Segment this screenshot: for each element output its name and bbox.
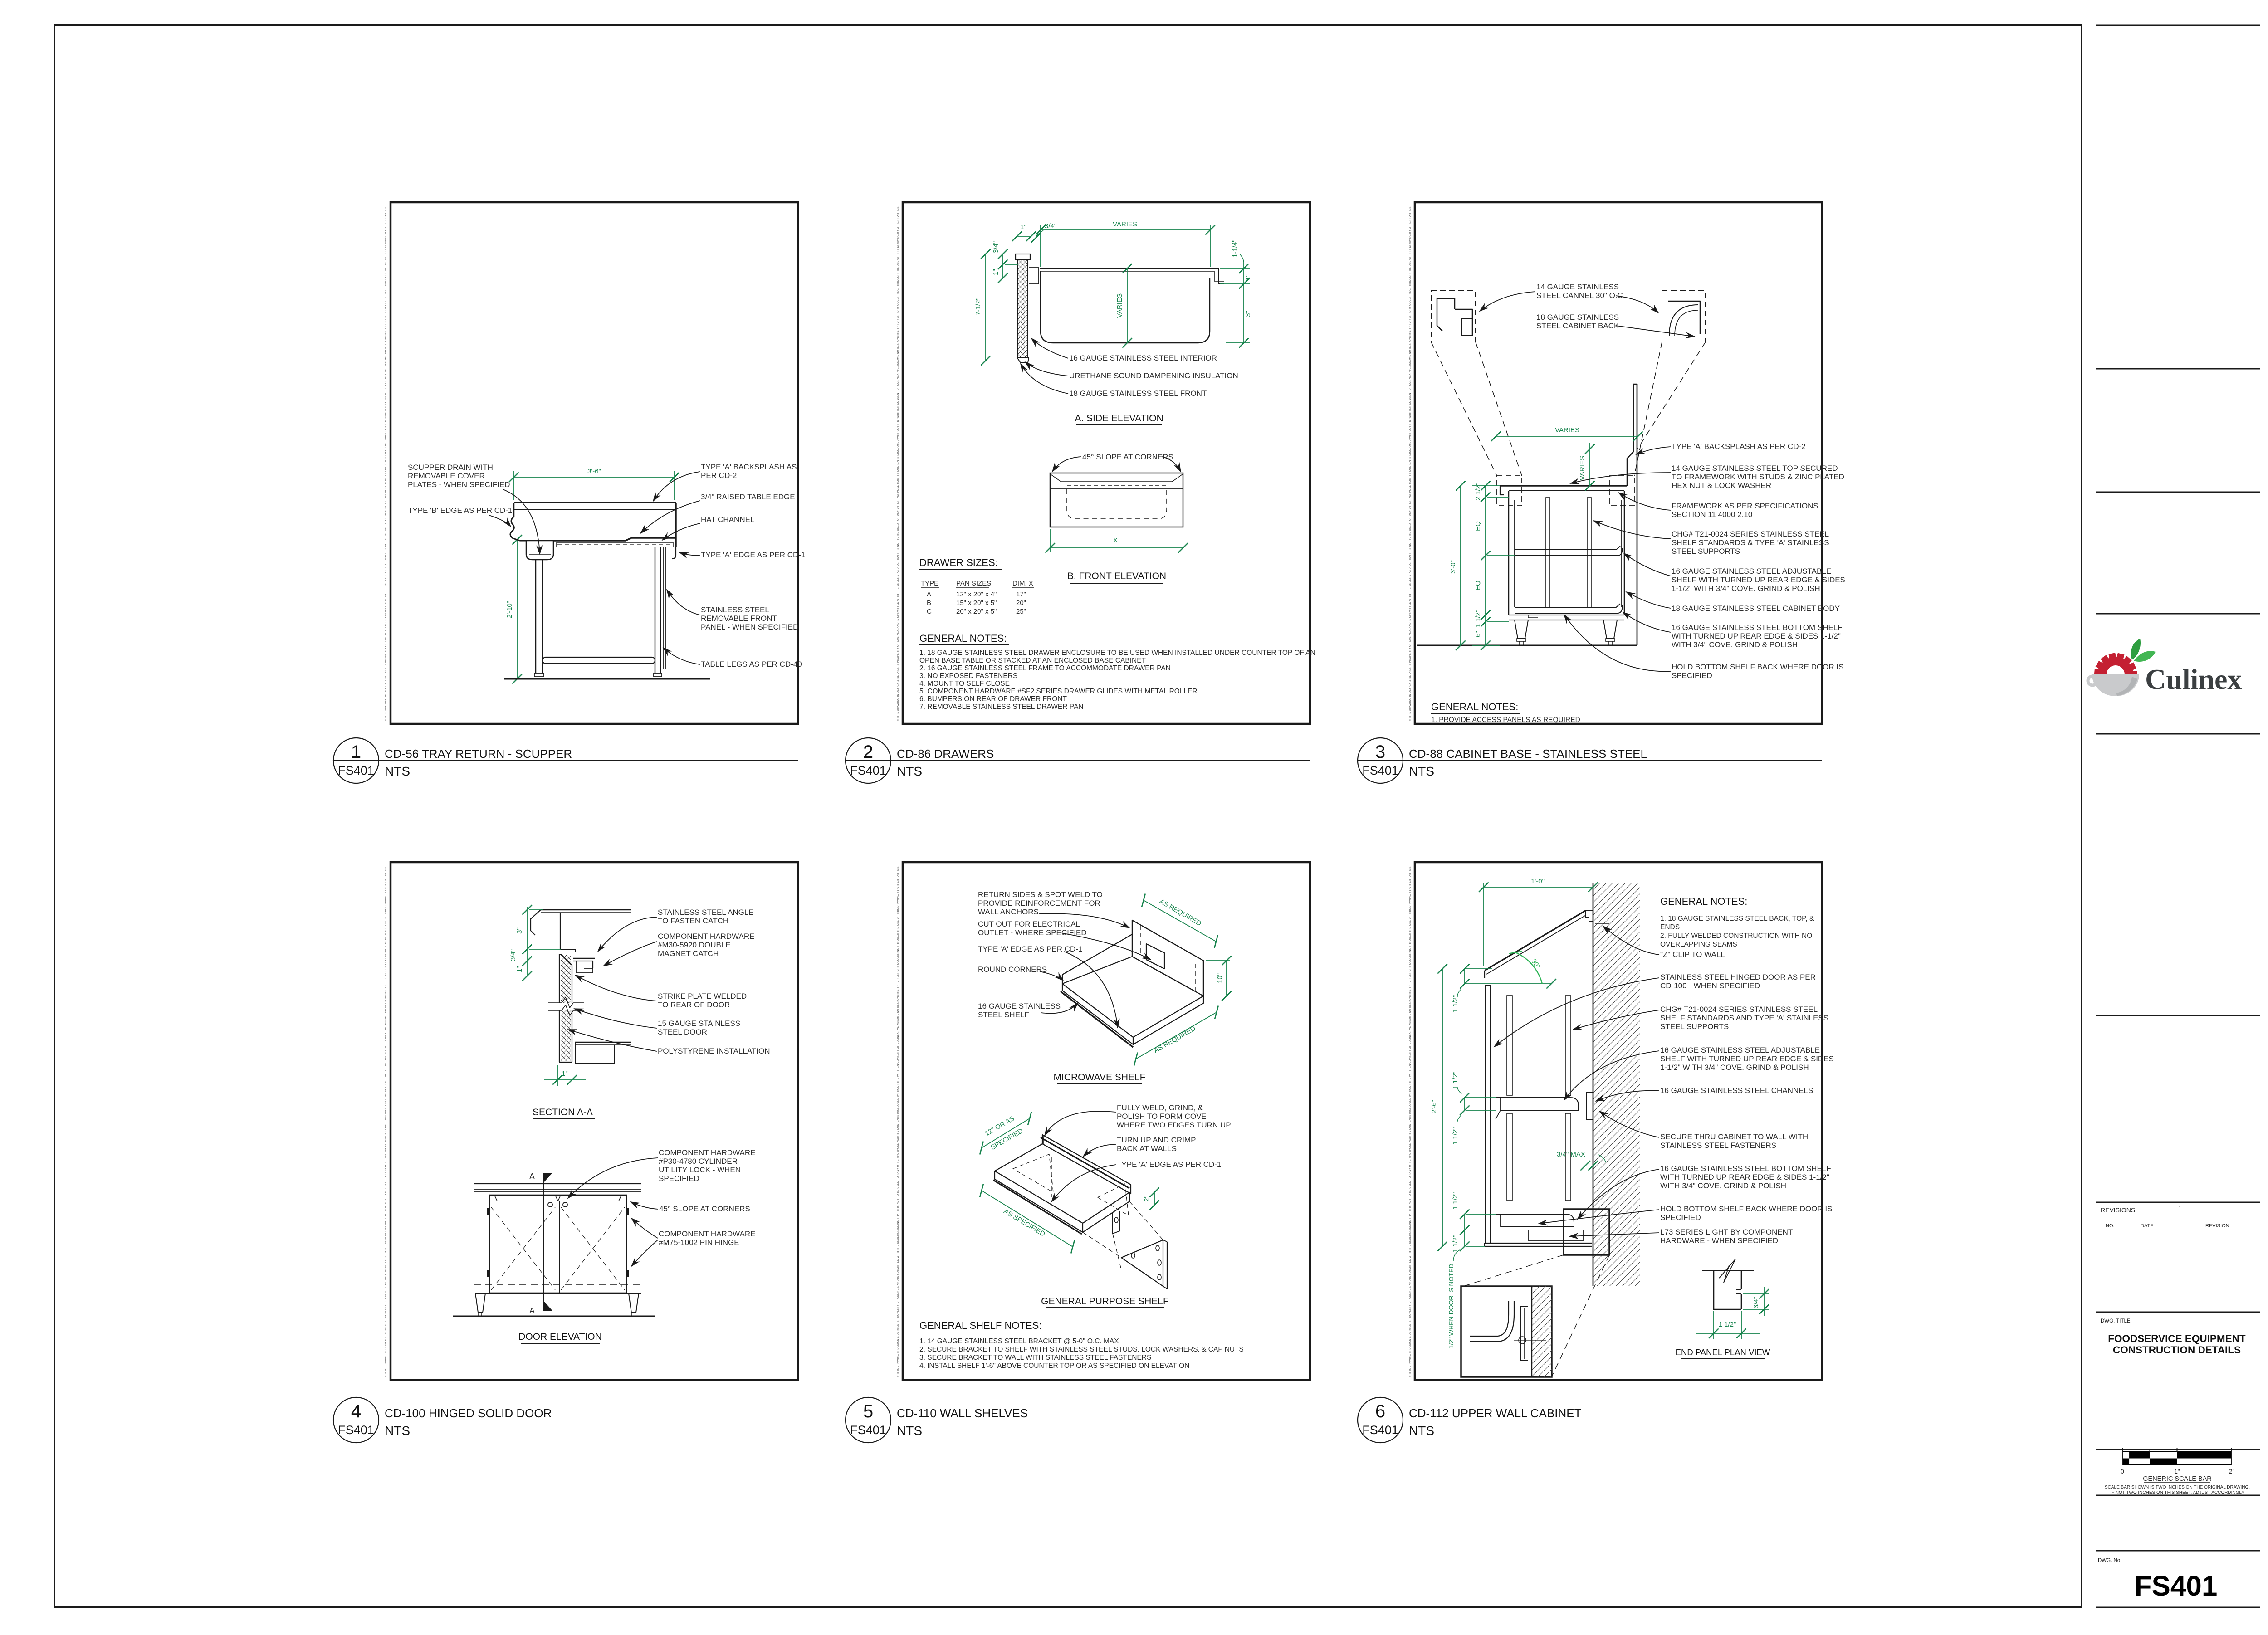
- svg-text:1 1/2": 1 1/2": [1452, 1192, 1459, 1210]
- svg-text:1: 1: [351, 742, 361, 762]
- svg-text:FS401: FS401: [2135, 1571, 2218, 1602]
- svg-text:#M30-5920 DOUBLE: #M30-5920 DOUBLE: [658, 941, 731, 949]
- svg-text:3/4": 3/4": [509, 949, 517, 961]
- svg-text:© THIS DRAWING IN DESIGN & DE: © THIS DRAWING IN DESIGN & DETAILS IS PR…: [896, 206, 899, 721]
- svg-text:30°: 30°: [1530, 957, 1542, 970]
- svg-text:FOODSERVICE EQUIPMENT: FOODSERVICE EQUIPMENT: [2108, 1333, 2246, 1344]
- svg-text:1 1/2": 1 1/2": [1474, 610, 1482, 628]
- svg-text:3'-0": 3'-0": [1449, 560, 1457, 574]
- svg-text:FS401: FS401: [850, 1423, 886, 1437]
- svg-text:TURN UP AND CRIMP: TURN UP AND CRIMP: [1117, 1136, 1196, 1144]
- svg-text:18 GAUGE STAINLESS: 18 GAUGE STAINLESS: [1536, 313, 1619, 322]
- svg-text:16 GAUGE STAINLESS STEEL BOTTO: 16 GAUGE STAINLESS STEEL BOTTOM SHELF: [1672, 623, 1843, 632]
- svg-text:3. NO EXPOSED FASTENERS: 3. NO EXPOSED FASTENERS: [919, 672, 1017, 680]
- svg-text:2. FULLY WELDED CONSTRUCTION W: 2. FULLY WELDED CONSTRUCTION WITH NO: [1660, 932, 1812, 940]
- svg-text:STAINLESS STEEL HINGED DOOR AS: STAINLESS STEEL HINGED DOOR AS PER: [1660, 973, 1816, 981]
- svg-text:DWG. TITLE: DWG. TITLE: [2101, 1318, 2131, 1324]
- svg-text:2": 2": [1143, 1196, 1151, 1202]
- svg-text:1": 1": [2174, 1468, 2180, 1475]
- svg-text:WITH 3/4" COVE. GRIND & POLISH: WITH 3/4" COVE. GRIND & POLISH: [1660, 1181, 1786, 1190]
- svg-text:A: A: [529, 1306, 535, 1315]
- svg-text:STRIKE PLATE WELDED: STRIKE PLATE WELDED: [658, 992, 747, 1001]
- svg-text:2'-6": 2'-6": [1430, 1100, 1438, 1113]
- svg-text:2. 16 GAUGE STAINLESS STEEL FR: 2. 16 GAUGE STAINLESS STEEL FRAME TO ACC…: [919, 664, 1171, 672]
- svg-text:2": 2": [2229, 1468, 2235, 1475]
- svg-text:CD-86 DRAWERS: CD-86 DRAWERS: [897, 747, 994, 761]
- svg-text:3": 3": [516, 927, 523, 934]
- svg-text:16 GAUGE STAINLESS STEEL BOTTO: 16 GAUGE STAINLESS STEEL BOTTOM SHELF: [1660, 1164, 1831, 1173]
- svg-text:PROVIDE REINFORCEMENT FOR: PROVIDE REINFORCEMENT FOR: [978, 899, 1100, 908]
- svg-text:': ': [2179, 1205, 2180, 1210]
- svg-text:WHERE TWO EDGES TURN UP: WHERE TWO EDGES TURN UP: [1117, 1121, 1231, 1129]
- svg-text:1": 1": [1244, 274, 1252, 281]
- svg-text:URETHANE SOUND DAMPENING INSUL: URETHANE SOUND DAMPENING INSULATION: [1069, 371, 1238, 380]
- svg-text:FS401: FS401: [338, 1423, 374, 1437]
- svg-text:DOOR ELEVATION: DOOR ELEVATION: [518, 1332, 602, 1342]
- svg-text:20" x 20" x 5": 20" x 20" x 5": [956, 608, 997, 615]
- svg-text:MICROWAVE SHELF: MICROWAVE SHELF: [1053, 1072, 1145, 1083]
- svg-text:IF NOT TWO INCHES ON THIS SHEE: IF NOT TWO INCHES ON THIS SHEET, ADJUST …: [2110, 1490, 2244, 1495]
- svg-text:2 1/2": 2 1/2": [1474, 483, 1482, 501]
- svg-text:#P30-4780 CYLINDER: #P30-4780 CYLINDER: [659, 1157, 738, 1166]
- svg-text:SPECIFIED: SPECIFIED: [1660, 1213, 1701, 1222]
- svg-text:1-1/2" WITH 3/4" COVE. GRIND &: 1-1/2" WITH 3/4" COVE. GRIND & POLISH: [1660, 1063, 1809, 1072]
- svg-text:0: 0: [2121, 1468, 2124, 1475]
- svg-text:16 GAUGE STAINLESS STEEL INTER: 16 GAUGE STAINLESS STEEL INTERIOR: [1069, 354, 1217, 362]
- svg-text:7-1/2": 7-1/2": [974, 298, 982, 316]
- svg-text:DIM. X: DIM. X: [1012, 580, 1033, 587]
- svg-text:© THIS DRAWING IN DESIGN & DE: © THIS DRAWING IN DESIGN & DETAILS IS PR…: [384, 866, 387, 1377]
- svg-text:6: 6: [1375, 1401, 1385, 1421]
- svg-text:45° SLOPE AT CORNERS: 45° SLOPE AT CORNERS: [1082, 453, 1173, 461]
- svg-text:STEEL SHELF: STEEL SHELF: [978, 1010, 1029, 1019]
- svg-text:MAGNET CATCH: MAGNET CATCH: [658, 949, 719, 958]
- svg-text:3: 3: [1375, 742, 1385, 762]
- svg-text:TYPE 'A' EDGE AS PER CD-1: TYPE 'A' EDGE AS PER CD-1: [701, 551, 805, 559]
- svg-text:POLYSTYRENE INSTALLATION: POLYSTYRENE INSTALLATION: [658, 1047, 770, 1055]
- svg-text:DRAWER SIZES:: DRAWER SIZES:: [919, 557, 998, 568]
- svg-text:AS SPECIFIED: AS SPECIFIED: [1002, 1207, 1046, 1238]
- svg-text:PLATES - WHEN SPECIFIED: PLATES - WHEN SPECIFIED: [408, 480, 510, 489]
- svg-text:3": 3": [1244, 311, 1252, 317]
- svg-text:VARIES: VARIES: [1579, 456, 1586, 480]
- svg-text:5. COMPONENT HARDWARE #SF2 SER: 5. COMPONENT HARDWARE #SF2 SERIES DRAWER…: [919, 688, 1198, 695]
- svg-text:CD-56 TRAY RETURN - SCUPPER: CD-56 TRAY RETURN - SCUPPER: [385, 747, 572, 761]
- svg-text:HARDWARE - WHEN SPECIFIED: HARDWARE - WHEN SPECIFIED: [1660, 1236, 1778, 1245]
- svg-text:DATE: DATE: [2141, 1223, 2154, 1229]
- svg-text:18 GAUGE STAINLESS STEEL CABIN: 18 GAUGE STAINLESS STEEL CABINET BODY: [1672, 604, 1840, 613]
- svg-text:GENERAL SHELF NOTES:: GENERAL SHELF NOTES:: [919, 1320, 1041, 1331]
- svg-text:15" x 20" x 5": 15" x 20" x 5": [956, 599, 997, 607]
- svg-text:16 GAUGE STAINLESS: 16 GAUGE STAINLESS: [978, 1002, 1061, 1010]
- svg-text:REVISION: REVISION: [2205, 1223, 2229, 1229]
- svg-text:1. 18 GAUGE STAINLESS STEEL BA: 1. 18 GAUGE STAINLESS STEEL BACK, TOP, &: [1660, 915, 1814, 922]
- svg-text:HOLD BOTTOM SHELF BACK WHERE D: HOLD BOTTOM SHELF BACK WHERE DOOR IS: [1672, 663, 1843, 671]
- svg-text:TYPE 'A' BACKSPLASH AS: TYPE 'A' BACKSPLASH AS: [701, 463, 797, 471]
- svg-text:CHG# T21-0024 SERIES STAINLESS: CHG# T21-0024 SERIES STAINLESS STEEL: [1660, 1005, 1818, 1014]
- svg-text:FS401: FS401: [850, 764, 886, 777]
- svg-text:14 GAUGE STAINLESS STEEL TOP S: 14 GAUGE STAINLESS STEEL TOP SECURED: [1672, 464, 1838, 473]
- svg-text:TO FASTEN CATCH: TO FASTEN CATCH: [658, 917, 728, 925]
- svg-text:GENERAL NOTES:: GENERAL NOTES:: [1660, 896, 1747, 907]
- svg-text:7. REMOVABLE STAINLESS STEEL D: 7. REMOVABLE STAINLESS STEEL DRAWER PAN: [919, 703, 1083, 711]
- svg-text:POLISH TO FORM COVE: POLISH TO FORM COVE: [1117, 1112, 1207, 1121]
- svg-text:© THIS DRAWING IN DESIGN & DE: © THIS DRAWING IN DESIGN & DETAILS IS PR…: [1408, 866, 1412, 1377]
- svg-text:© THIS DRAWING IN DESIGN & DE: © THIS DRAWING IN DESIGN & DETAILS IS PR…: [896, 866, 899, 1377]
- svg-text:NTS: NTS: [897, 1424, 922, 1438]
- svg-text:PANEL - WHEN SPECIFIED: PANEL - WHEN SPECIFIED: [701, 623, 798, 631]
- svg-text:3/4" MAX: 3/4" MAX: [1557, 1151, 1585, 1158]
- svg-text:A. SIDE ELEVATION: A. SIDE ELEVATION: [1075, 413, 1163, 424]
- svg-text:A: A: [927, 591, 931, 598]
- svg-text:1 1/2": 1 1/2": [1452, 1127, 1459, 1145]
- svg-text:3'-6": 3'-6": [587, 468, 601, 475]
- svg-text:UTILITY LOCK - WHEN: UTILITY LOCK - WHEN: [659, 1166, 741, 1174]
- svg-text:16 GAUGE STAINLESS STEEL ADJUS: 16 GAUGE STAINLESS STEEL ADJUSTABLE: [1672, 567, 1831, 576]
- svg-text:1": 1": [992, 269, 1000, 275]
- svg-text:4: 4: [351, 1401, 361, 1421]
- svg-text:1. PROVIDE ACCESS PANELS AS RE: 1. PROVIDE ACCESS PANELS AS REQUIRED: [1431, 716, 1580, 724]
- svg-text:CD-110 WALL SHELVES: CD-110 WALL SHELVES: [897, 1406, 1028, 1420]
- svg-text:EQ: EQ: [1474, 521, 1482, 531]
- svg-text:20": 20": [1016, 599, 1026, 607]
- svg-text:TO FRAMEWORK WITH STUDS & ZINC: TO FRAMEWORK WITH STUDS & ZINC PLATED: [1672, 473, 1844, 481]
- svg-text:SECURE THRU CABINET TO WALL WI: SECURE THRU CABINET TO WALL WITH: [1660, 1132, 1808, 1141]
- svg-text:25": 25": [1016, 608, 1026, 615]
- svg-text:45° SLOPE AT CORNERS: 45° SLOPE AT CORNERS: [659, 1205, 750, 1213]
- svg-text:2: 2: [863, 742, 873, 762]
- svg-text:1. 14 GAUGE STAINLESS STEEL BR: 1. 14 GAUGE STAINLESS STEEL BRACKET @ 5-…: [919, 1337, 1119, 1345]
- svg-text:ROUND CORNERS: ROUND CORNERS: [978, 965, 1047, 974]
- svg-text:1": 1": [1020, 223, 1026, 231]
- svg-text:1": 1": [516, 966, 523, 972]
- svg-text:3/4" RAISED TABLE EDGE: 3/4" RAISED TABLE EDGE: [701, 493, 795, 501]
- svg-text:L73 SERIES LIGHT BY COMPONENT: L73 SERIES LIGHT BY COMPONENT: [1660, 1228, 1793, 1236]
- svg-text:1-1/4": 1-1/4": [1231, 239, 1239, 258]
- svg-text:HEX NUT & LOCK WASHER: HEX NUT & LOCK WASHER: [1672, 481, 1771, 490]
- svg-text:CHG# T21-0024 SERIES STAINLESS: CHG# T21-0024 SERIES STAINLESS STEEL: [1672, 530, 1829, 538]
- svg-text:OUTLET - WHERE SPECIFIED: OUTLET - WHERE SPECIFIED: [978, 928, 1087, 937]
- svg-text:SCALE BAR SHOWN IS TWO INCHES: SCALE BAR SHOWN IS TWO INCHES ON THE ORI…: [2105, 1485, 2250, 1490]
- svg-text:TYPE 'A' EDGE AS PER CD-1: TYPE 'A' EDGE AS PER CD-1: [978, 945, 1082, 953]
- svg-text:REVISIONS: REVISIONS: [2101, 1206, 2135, 1214]
- svg-text:COMPONENT HARDWARE: COMPONENT HARDWARE: [659, 1230, 755, 1238]
- svg-text:Culinex: Culinex: [2145, 663, 2242, 695]
- svg-text:SECTION A-A: SECTION A-A: [533, 1107, 593, 1118]
- svg-text:SPECIFIED: SPECIFIED: [1672, 671, 1712, 680]
- svg-text:15 GAUGE STAINLESS: 15 GAUGE STAINLESS: [658, 1019, 740, 1028]
- svg-text:STAINLESS STEEL ANGLE: STAINLESS STEEL ANGLE: [658, 908, 754, 917]
- svg-text:X: X: [1113, 537, 1118, 544]
- svg-text:OPEN BASE TABLE OR STACKED AT: OPEN BASE TABLE OR STACKED AT AN ENCLOSE…: [919, 657, 1146, 664]
- svg-text:3/4": 3/4": [992, 241, 1000, 253]
- svg-text:17": 17": [1016, 591, 1026, 598]
- svg-text:VARIES: VARIES: [1116, 293, 1124, 318]
- svg-text:TYPE 'A' BACKSPLASH AS PER CD-: TYPE 'A' BACKSPLASH AS PER CD-2: [1672, 442, 1806, 451]
- svg-text:TABLE LEGS AS PER CD-40: TABLE LEGS AS PER CD-40: [701, 660, 802, 669]
- svg-text:2. SECURE BRACKET TO SHELF WIT: 2. SECURE BRACKET TO SHELF WITH STAINLES…: [919, 1346, 1244, 1353]
- svg-text:REMOVABLE FRONT: REMOVABLE FRONT: [701, 614, 777, 623]
- svg-text:"Z" CLIP TO WALL: "Z" CLIP TO WALL: [1660, 950, 1725, 959]
- svg-text:NTS: NTS: [385, 764, 410, 778]
- svg-text:B. FRONT ELEVATION: B. FRONT ELEVATION: [1067, 571, 1166, 581]
- svg-text:TYPE 'B' EDGE AS PER CD-1: TYPE 'B' EDGE AS PER CD-1: [408, 506, 512, 515]
- svg-text:HAT CHANNEL: HAT CHANNEL: [701, 515, 754, 524]
- svg-text:3. SECURE BRACKET TO WALL WITH: 3. SECURE BRACKET TO WALL WITH STAINLESS…: [919, 1354, 1151, 1362]
- svg-text:STEEL CABINET BACK: STEEL CABINET BACK: [1536, 322, 1619, 330]
- svg-text:OVERLAPPING SEAMS: OVERLAPPING SEAMS: [1660, 941, 1737, 948]
- svg-text:HOLD BOTTOM SHELF BACK WHERE D: HOLD BOTTOM SHELF BACK WHERE DOOR IS: [1660, 1205, 1832, 1213]
- svg-text:CUT OUT FOR ELECTRICAL: CUT OUT FOR ELECTRICAL: [978, 920, 1080, 928]
- svg-text:1 1/2": 1 1/2": [1719, 1321, 1736, 1328]
- svg-text:RETURN SIDES & SPOT WELD TO: RETURN SIDES & SPOT WELD TO: [978, 890, 1103, 899]
- svg-text:ENDS: ENDS: [1660, 923, 1680, 931]
- svg-text:16 GAUGE STAINLESS STEEL CHANN: 16 GAUGE STAINLESS STEEL CHANNELS: [1660, 1086, 1813, 1095]
- svg-text:DWG. No.: DWG. No.: [2098, 1558, 2121, 1563]
- svg-text:VARIES: VARIES: [1555, 426, 1579, 434]
- svg-text:COMPONENT HARDWARE: COMPONENT HARDWARE: [659, 1148, 755, 1157]
- svg-text:1/2" WHEN DOOR IS NOTED: 1/2" WHEN DOOR IS NOTED: [1447, 1264, 1455, 1349]
- svg-text:EQ: EQ: [1474, 581, 1482, 591]
- svg-text:1. 18 GAUGE STAINLESS STEEL DR: 1. 18 GAUGE STAINLESS STEEL DRAWER ENCLO…: [919, 649, 1315, 657]
- svg-text:STEEL SUPPORTS: STEEL SUPPORTS: [1672, 547, 1740, 556]
- svg-text:PAN SIZES: PAN SIZES: [956, 580, 991, 587]
- svg-text:#M75-1002 PIN HINGE: #M75-1002 PIN HINGE: [659, 1238, 739, 1247]
- svg-text:10": 10": [1216, 973, 1224, 983]
- svg-text:CD-88 CABINET BASE - STAINLESS: CD-88 CABINET BASE - STAINLESS STEEL: [1409, 747, 1647, 761]
- svg-text:CONSTRUCTION DETAILS: CONSTRUCTION DETAILS: [2113, 1344, 2241, 1356]
- svg-text:B: B: [927, 599, 931, 607]
- svg-text:NTS: NTS: [1409, 764, 1434, 778]
- svg-text:SHELF STANDARDS AND TYPE 'A' S: SHELF STANDARDS AND TYPE 'A' STAINLESS: [1660, 1014, 1828, 1022]
- svg-text:GENERAL NOTES:: GENERAL NOTES:: [1431, 701, 1518, 713]
- svg-text:© THIS DRAWING IN DESIGN & DE: © THIS DRAWING IN DESIGN & DETAILS IS PR…: [1408, 206, 1412, 721]
- svg-text:TO REAR OF DOOR: TO REAR OF DOOR: [658, 1001, 730, 1009]
- svg-text:1'-0": 1'-0": [1531, 878, 1545, 885]
- svg-text:TYPE 'A' EDGE AS PER CD-1: TYPE 'A' EDGE AS PER CD-1: [1117, 1160, 1221, 1169]
- svg-text:5: 5: [863, 1401, 873, 1421]
- svg-text:SHELF STANDARDS & TYPE 'A' STA: SHELF STANDARDS & TYPE 'A' STAINLESS: [1672, 538, 1829, 547]
- svg-text:4. MOUNT TO SELF CLOSE: 4. MOUNT TO SELF CLOSE: [919, 680, 1010, 688]
- svg-text:2'-10": 2'-10": [506, 601, 513, 618]
- svg-text:4. INSTALL SHELF 1'-6" ABOVE C: 4. INSTALL SHELF 1'-6" ABOVE COUNTER TOP…: [919, 1362, 1189, 1370]
- svg-text:STEEL SUPPORTS: STEEL SUPPORTS: [1660, 1022, 1729, 1031]
- svg-text:NTS: NTS: [1409, 1424, 1434, 1438]
- svg-text:WITH TURNED UP REAR EDGE & SID: WITH TURNED UP REAR EDGE & SIDES 1-1/2": [1672, 632, 1841, 640]
- svg-text:1": 1": [562, 1070, 568, 1078]
- svg-text:CD-112 UPPER WALL CABINET: CD-112 UPPER WALL CABINET: [1409, 1406, 1582, 1420]
- svg-text:SPECIFIED: SPECIFIED: [659, 1174, 699, 1183]
- svg-text:SHELF WITH TURNED UP REAR EDGE: SHELF WITH TURNED UP REAR EDGE & SIDES: [1672, 576, 1845, 584]
- svg-text:A: A: [529, 1172, 535, 1181]
- svg-text:END PANEL PLAN VIEW: END PANEL PLAN VIEW: [1676, 1347, 1770, 1357]
- svg-text:WITH TURNED UP REAR EDGE & SID: WITH TURNED UP REAR EDGE & SIDES 1-1/2": [1660, 1173, 1829, 1181]
- svg-text:FS401: FS401: [1362, 1423, 1398, 1437]
- svg-text:FRAMEWORK AS PER SPECIFICATION: FRAMEWORK AS PER SPECIFICATIONS: [1672, 502, 1818, 510]
- svg-text:FS401: FS401: [338, 764, 374, 777]
- svg-text:WITH 3/4" COVE. GRIND & POLISH: WITH 3/4" COVE. GRIND & POLISH: [1672, 640, 1798, 649]
- svg-text:STEEL CANNEL 30" O.C.: STEEL CANNEL 30" O.C.: [1536, 291, 1625, 300]
- svg-text:NTS: NTS: [385, 1424, 410, 1438]
- svg-text:6. BUMPERS ON REAR OF DRAWER F: 6. BUMPERS ON REAR OF DRAWER FRONT: [919, 695, 1067, 703]
- svg-text:STEEL DOOR: STEEL DOOR: [658, 1028, 707, 1036]
- svg-text:STAINLESS STEEL: STAINLESS STEEL: [701, 605, 769, 614]
- svg-text:STAINLESS STEEL FASTENERS: STAINLESS STEEL FASTENERS: [1660, 1141, 1776, 1150]
- svg-text:NO.: NO.: [2106, 1223, 2115, 1229]
- svg-text:14 GAUGE STAINLESS: 14 GAUGE STAINLESS: [1536, 283, 1619, 291]
- svg-text:COMPONENT HARDWARE: COMPONENT HARDWARE: [658, 932, 754, 941]
- svg-text:18 GAUGE STAINLESS STEEL FRONT: 18 GAUGE STAINLESS STEEL FRONT: [1069, 389, 1207, 398]
- svg-text:REMOVABLE COVER: REMOVABLE COVER: [408, 472, 485, 480]
- svg-text:VARIES: VARIES: [1113, 220, 1137, 228]
- svg-text:C: C: [927, 608, 932, 615]
- svg-text:SHELF WITH TURNED UP REAR EDGE: SHELF WITH TURNED UP REAR EDGE & SIDES: [1660, 1054, 1834, 1063]
- svg-text:PER CD-2: PER CD-2: [701, 471, 737, 480]
- svg-text:12" x 20" x 4": 12" x 20" x 4": [956, 591, 997, 598]
- svg-text:SECTION 11 4000 2.10: SECTION 11 4000 2.10: [1672, 510, 1752, 519]
- svg-text:16 GAUGE STAINLESS STEEL ADJUS: 16 GAUGE STAINLESS STEEL ADJUSTABLE: [1660, 1046, 1820, 1054]
- svg-text:CD-100 - WHEN SPECIFIED: CD-100 - WHEN SPECIFIED: [1660, 981, 1760, 990]
- svg-text:GENERAL PURPOSE SHELF: GENERAL PURPOSE SHELF: [1041, 1296, 1169, 1307]
- svg-text:1-1/2" WITH 3/4" COVE. GRIND &: 1-1/2" WITH 3/4" COVE. GRIND & POLISH: [1672, 584, 1820, 593]
- svg-text:1 1/2": 1 1/2": [1452, 1235, 1459, 1253]
- svg-text:3/4": 3/4": [1752, 1297, 1760, 1308]
- svg-text:WALL ANCHORS: WALL ANCHORS: [978, 908, 1039, 916]
- svg-text:FS401: FS401: [1362, 764, 1398, 777]
- svg-text:6": 6": [1474, 631, 1482, 637]
- svg-text:BACK AT WALLS: BACK AT WALLS: [1117, 1144, 1177, 1153]
- svg-text:3/4": 3/4": [1045, 222, 1056, 230]
- svg-text:© THIS DRAWING IN DESIGN & DE: © THIS DRAWING IN DESIGN & DETAILS IS PR…: [384, 206, 387, 721]
- svg-text:1 1/2": 1 1/2": [1452, 1072, 1459, 1089]
- svg-text:GENERIC SCALE BAR: GENERIC SCALE BAR: [2143, 1475, 2212, 1483]
- svg-text:SCUPPER DRAIN WITH: SCUPPER DRAIN WITH: [408, 463, 493, 472]
- svg-text:TYPE: TYPE: [921, 580, 938, 587]
- svg-text:GENERAL NOTES:: GENERAL NOTES:: [919, 633, 1007, 644]
- svg-text:NTS: NTS: [897, 764, 922, 778]
- svg-text:1 1/2": 1 1/2": [1452, 995, 1459, 1013]
- svg-text:CD-100 HINGED SOLID DOOR: CD-100 HINGED SOLID DOOR: [385, 1406, 552, 1420]
- svg-text:FULLY WELD, GRIND, &: FULLY WELD, GRIND, &: [1117, 1103, 1203, 1112]
